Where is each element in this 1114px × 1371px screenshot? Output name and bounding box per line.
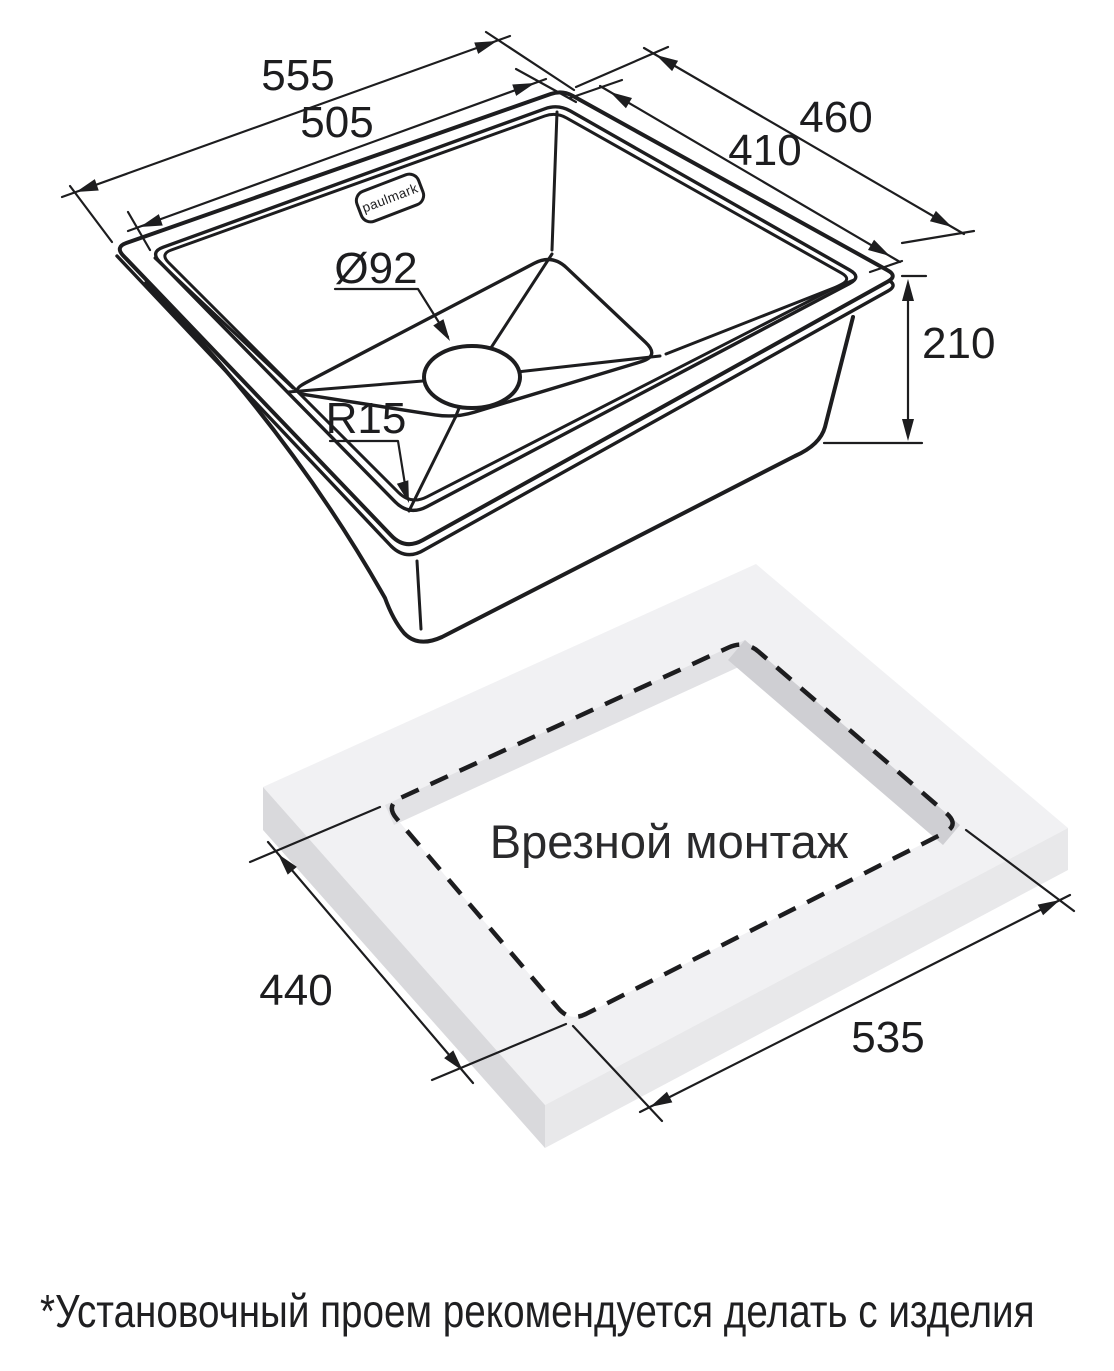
arrowhead: [607, 87, 632, 108]
arrowhead: [433, 319, 455, 344]
dim-label-440: 440: [259, 966, 332, 1015]
sink-isometric-view: paulmark 555 505 460: [62, 32, 995, 642]
dim-label-drain: Ø92: [334, 244, 417, 293]
drain-hole: [424, 346, 520, 408]
dim-label-460: 460: [799, 93, 872, 142]
sink-rim-thickness: [117, 256, 893, 555]
dim-label-555: 555: [261, 51, 334, 100]
dim-label-505: 505: [300, 98, 373, 147]
footnote: *Установочный проем рекомендуется делать…: [40, 1286, 1035, 1337]
extension-line: [70, 186, 112, 242]
cutout-title: Врезной монтаж: [490, 815, 849, 868]
sink-installation-diagram: paulmark 555 505 460: [0, 0, 1114, 1371]
dim-label-210: 210: [922, 319, 995, 368]
sink-body-corner-edge: [417, 561, 421, 629]
arrowhead: [902, 419, 914, 441]
arrowhead: [930, 211, 955, 232]
dim-label-radius: R15: [326, 394, 407, 443]
dimension-drain: Ø92: [334, 244, 455, 344]
arrowhead: [902, 279, 914, 301]
countertop-cutout-view: Врезной монтаж 440 535: [250, 564, 1074, 1148]
dimension-radius: R15: [326, 394, 415, 505]
dim-label-410: 410: [728, 126, 801, 175]
extension-line: [128, 212, 150, 250]
footnote-text: *Установочный проем рекомендуется делать…: [40, 1286, 1035, 1337]
dim-label-535: 535: [851, 1013, 924, 1062]
arrowhead: [868, 240, 893, 261]
leader-line: [335, 289, 448, 337]
arrowhead: [512, 77, 537, 96]
dimension-505: 505: [128, 69, 576, 250]
diagram-canvas: paulmark 555 505 460: [0, 0, 1114, 1371]
arrowhead: [1038, 895, 1063, 916]
